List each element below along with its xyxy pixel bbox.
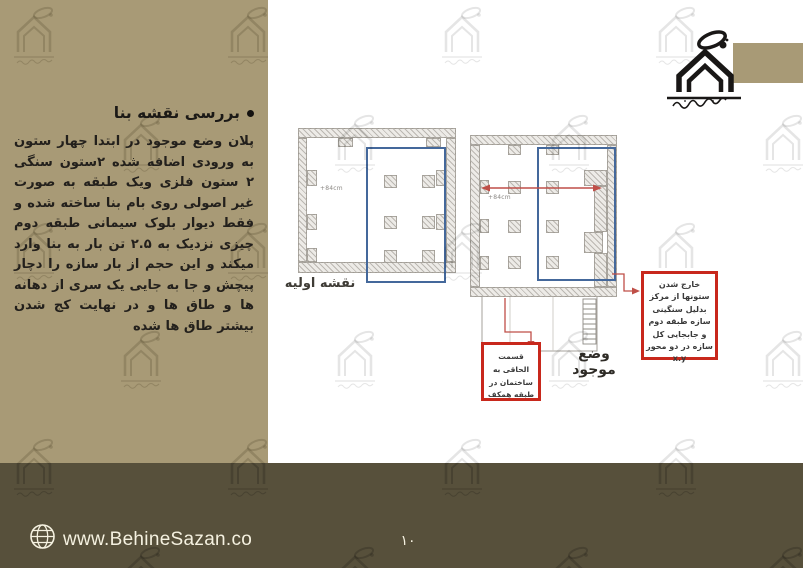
- page-number: ۱۰: [388, 533, 428, 549]
- staircase: [583, 299, 596, 344]
- bullet-icon: [247, 110, 254, 117]
- elevation-label-existing: +84cm: [488, 194, 511, 201]
- slide: بررسی نقشه بنا پلان وضع موجود در ابتدا چ…: [0, 0, 803, 568]
- globe-icon: [29, 523, 56, 550]
- website-link[interactable]: www.BehineSazan.co: [63, 526, 252, 553]
- elevation-label-initial: +84cm: [320, 185, 343, 192]
- callout-annex: قسمت الحاقی به ساختمان در طبقه همکف: [481, 342, 541, 401]
- span-arrow: [481, 185, 602, 192]
- caption-initial-plan: نقشه اولیه: [283, 276, 357, 291]
- sidebar-content: بررسی نقشه بنا پلان وضع موجود در ابتدا چ…: [0, 104, 268, 337]
- connector-columns-shift: [612, 274, 640, 295]
- section-heading-text: بررسی نقشه بنا: [114, 104, 240, 122]
- callout-columns-shift: خارج شدن ستونها از مرکز بدلیل سنگینی ساز…: [641, 271, 718, 360]
- body-paragraph: پلان وضع موجود در ابتدا چهار ستون به ورو…: [14, 132, 254, 337]
- section-heading: بررسی نقشه بنا: [14, 104, 254, 122]
- caption-existing-plan: وضع موجود: [556, 346, 632, 378]
